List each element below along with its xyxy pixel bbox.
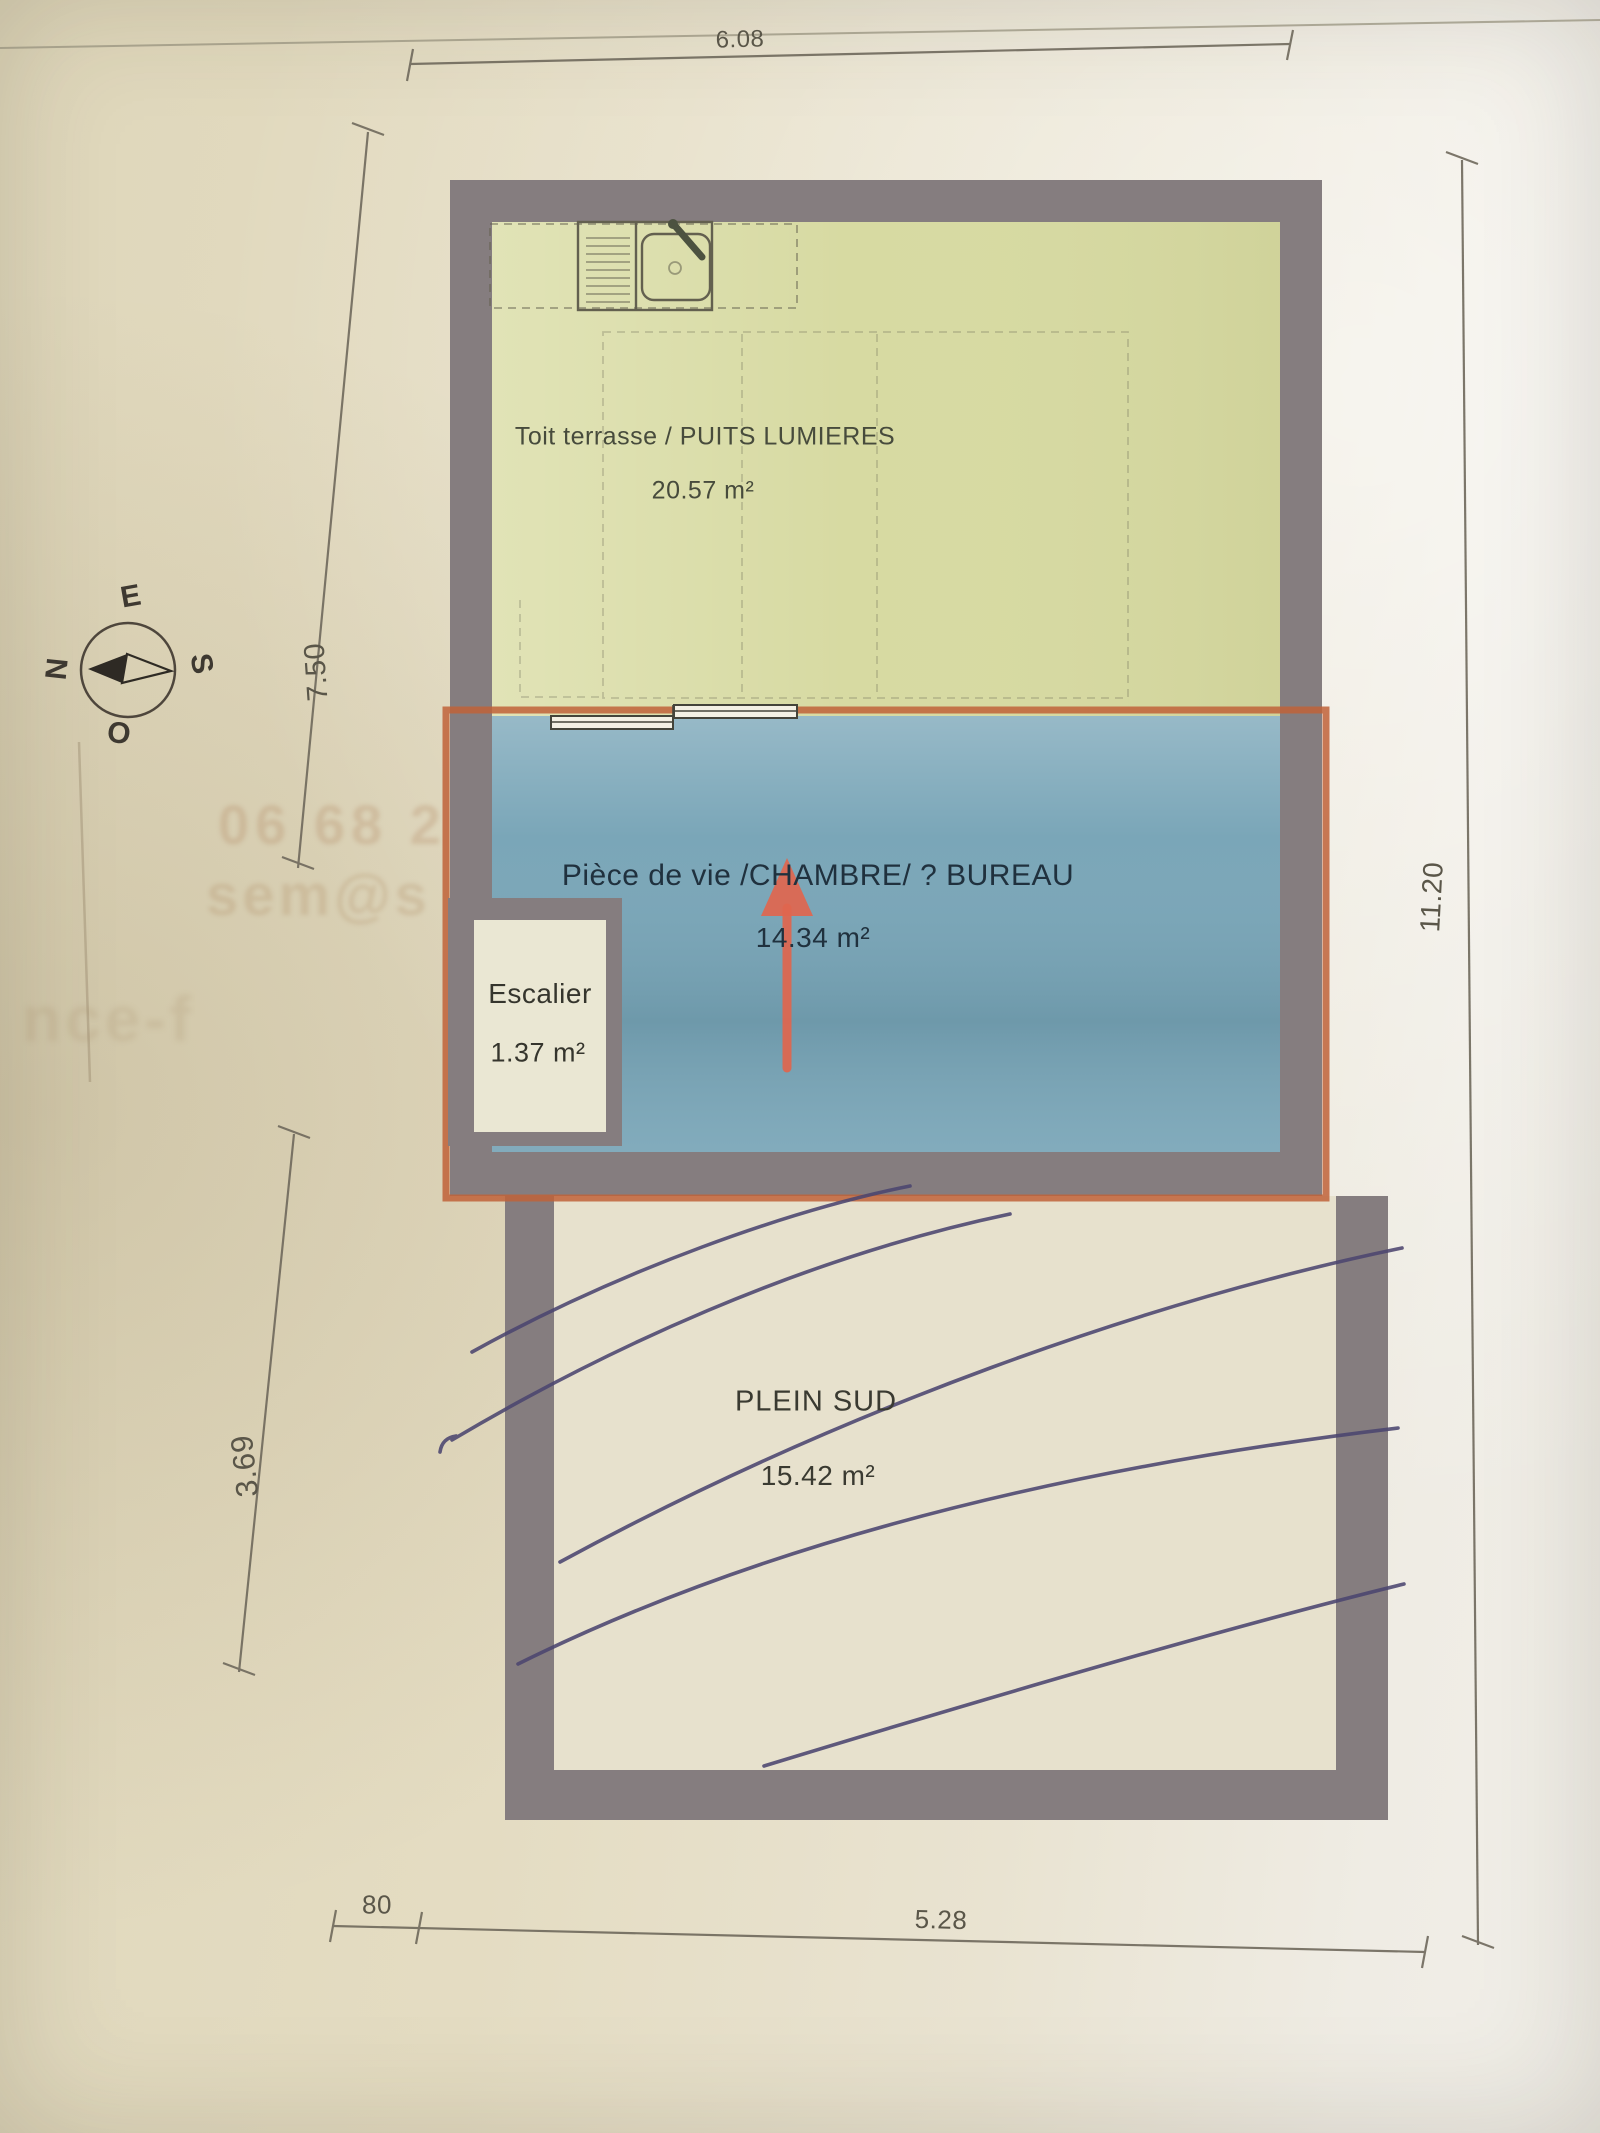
stairs-label: Escalier xyxy=(488,978,592,1010)
stairs-box xyxy=(448,898,622,1146)
dim-upper-left-height: 7.50 xyxy=(299,642,336,703)
bleedthrough-email-text: sem@s xyxy=(206,862,431,929)
bleedthrough-word-text: nce-f xyxy=(22,982,195,1056)
terrace-room-label: Toit terrasse / PUITS LUMIERES xyxy=(515,423,895,452)
compass-rose-icon xyxy=(81,623,175,717)
dim-bottom-width: 5.28 xyxy=(914,1904,967,1936)
south-terrace-label: PLEIN SUD xyxy=(735,1386,897,1419)
terrace-room-area: 20.57 m² xyxy=(652,477,755,506)
living-room-label: Pièce de vie /CHAMBRE/ ? BUREAU xyxy=(562,859,1074,893)
bleedthrough-phone-text: 06 68 2 xyxy=(218,792,447,857)
compass-west-label: O xyxy=(105,716,133,753)
floorplan-drawing xyxy=(0,0,1600,2133)
dim-bottom-offset: 80 xyxy=(362,1890,392,1921)
paper-edge-line xyxy=(0,20,1600,48)
south-terrace-area: 15.42 m² xyxy=(761,1460,876,1492)
dim-lower-left-height: 3.69 xyxy=(224,1433,266,1499)
stairs-area: 1.37 m² xyxy=(490,1038,585,1069)
living-room-area: 14.34 m² xyxy=(756,922,871,954)
dim-top-width: 6.08 xyxy=(715,25,764,54)
dim-right-height: 11.20 xyxy=(1414,861,1450,933)
compass-north-label: N xyxy=(37,656,73,682)
floorplan-photo: Toit terrasse / PUITS LUMIERES 20.57 m² … xyxy=(0,0,1600,2133)
